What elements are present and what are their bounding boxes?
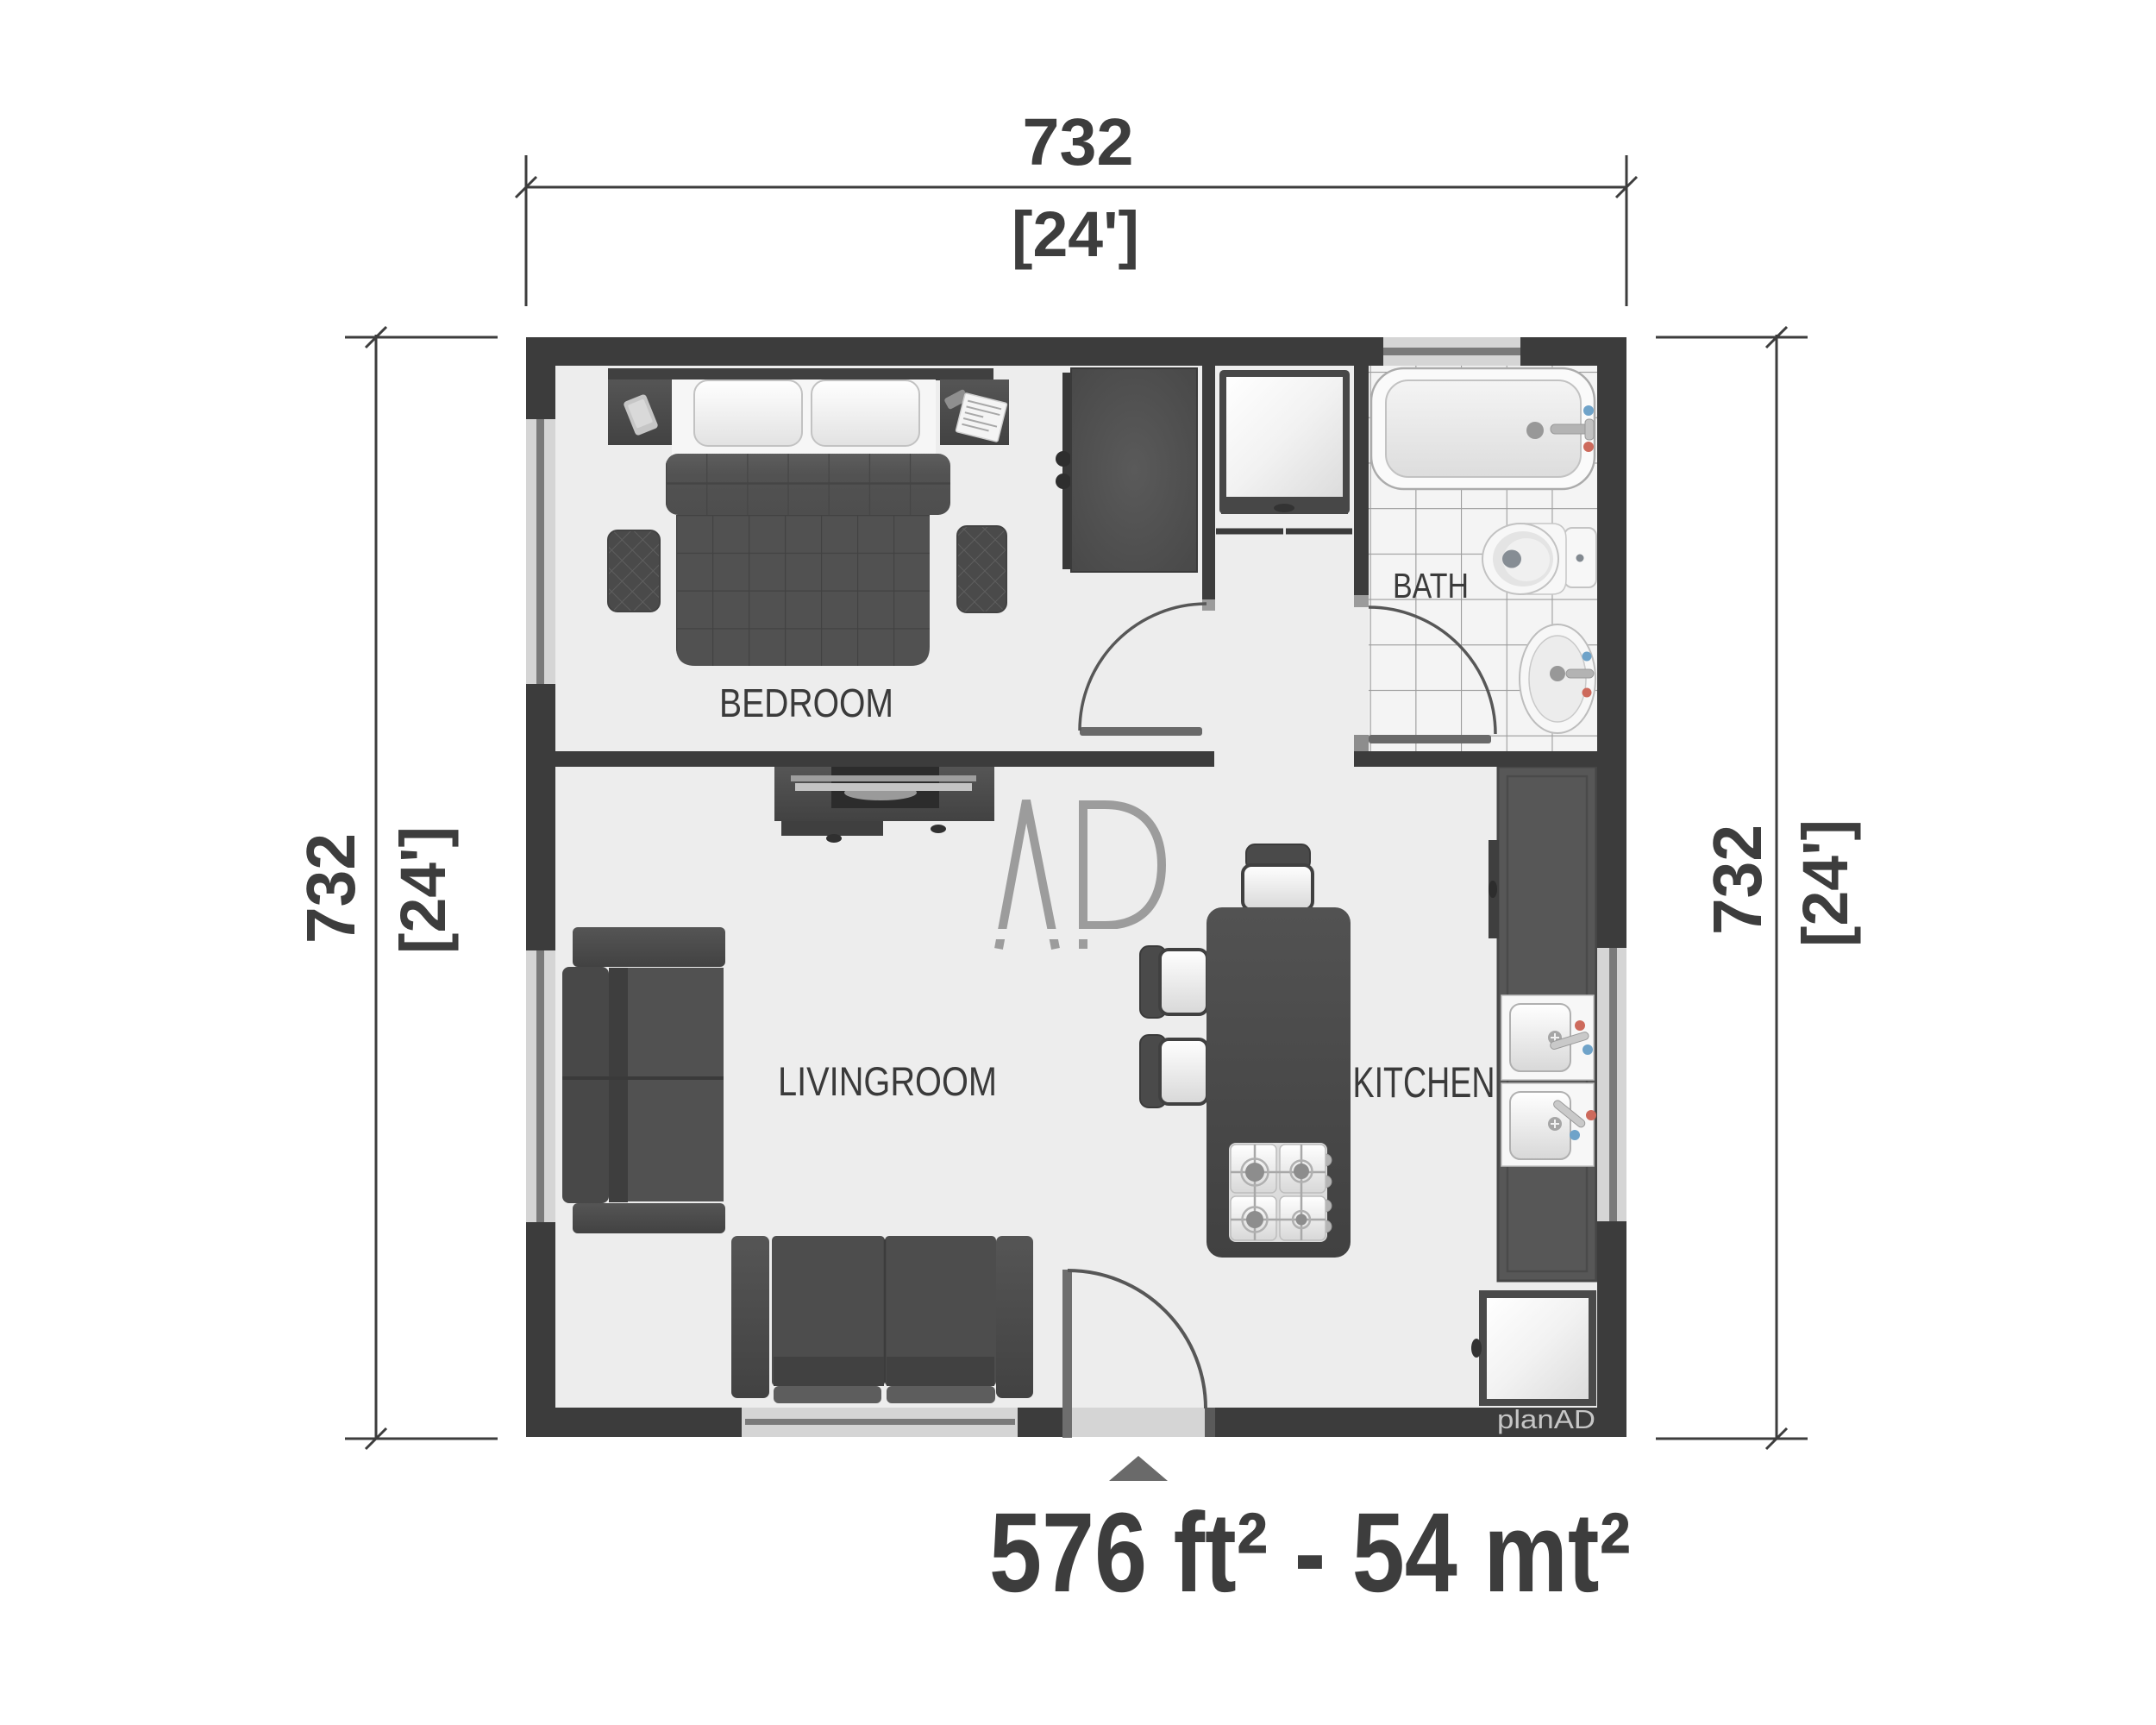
svg-text:BEDROOM: BEDROOM <box>719 681 893 725</box>
svg-text:[24']: [24'] <box>1789 819 1861 947</box>
svg-text:732: 732 <box>1023 105 1134 179</box>
svg-text:732: 732 <box>292 833 369 944</box>
svg-text:BATH: BATH <box>1393 566 1469 605</box>
svg-text:732: 732 <box>1699 825 1776 935</box>
svg-text:KITCHEN: KITCHEN <box>1353 1058 1495 1107</box>
svg-text:[24']: [24'] <box>1012 198 1139 270</box>
svg-text:[24']: [24'] <box>387 826 459 954</box>
svg-text:LIVINGROOM: LIVINGROOM <box>778 1058 997 1104</box>
svg-text:planAD: planAD <box>1497 1404 1595 1434</box>
svg-text:576 ft² - 54 mt²: 576 ft² - 54 mt² <box>989 1489 1631 1615</box>
